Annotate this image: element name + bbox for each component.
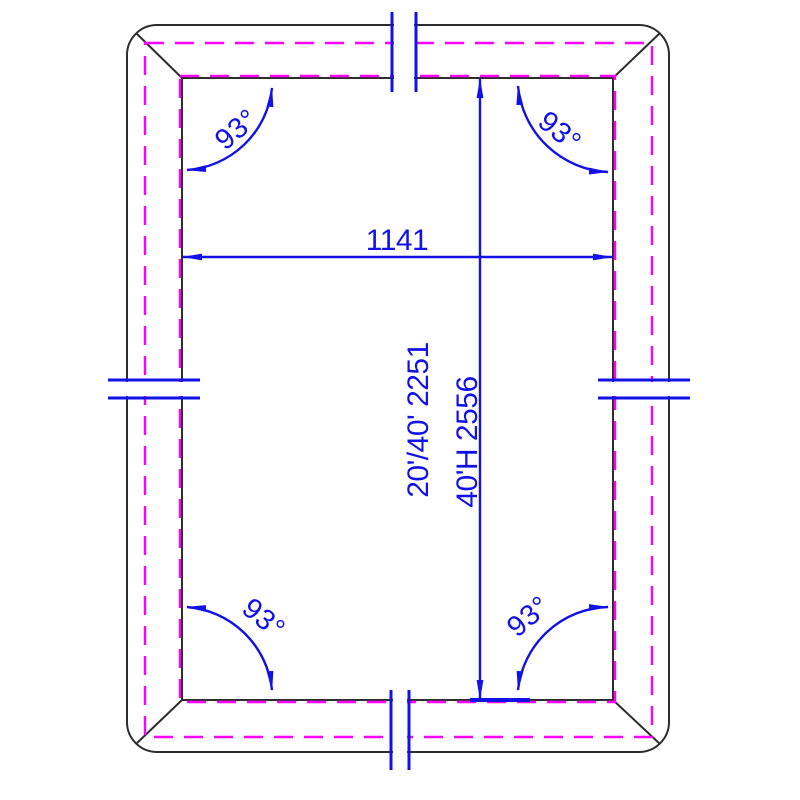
angle-label-top-right: 93°: [532, 105, 587, 159]
height-dimension-label-line1: 20'/40' 2251: [402, 342, 435, 498]
technical-drawing: 1141 20'/40' 2251 40'H 2556 93° 93° 93° …: [0, 0, 800, 800]
break-gaps: [110, 14, 688, 768]
outer-wall: [127, 25, 669, 752]
corner-chamfer-top-left: [136, 33, 182, 78]
width-dimension-label: 1141: [366, 224, 429, 257]
angle-label-top-left: 93°: [209, 103, 264, 157]
cad-drawing-canvas: 1141 20'/40' 2251 40'H 2556 93° 93° 93° …: [0, 0, 800, 800]
break-gap-top: [394, 14, 414, 92]
break-gap-bottom: [393, 692, 407, 768]
frame-outline: [127, 25, 669, 752]
angle-label-bottom-left: 93°: [236, 592, 291, 646]
break-gap-right: [600, 382, 688, 396]
angle-label-bottom-right: 93°: [501, 590, 556, 644]
break-gap-left: [110, 382, 198, 396]
height-dimension-label-line2: 40'H 2556: [451, 376, 484, 507]
